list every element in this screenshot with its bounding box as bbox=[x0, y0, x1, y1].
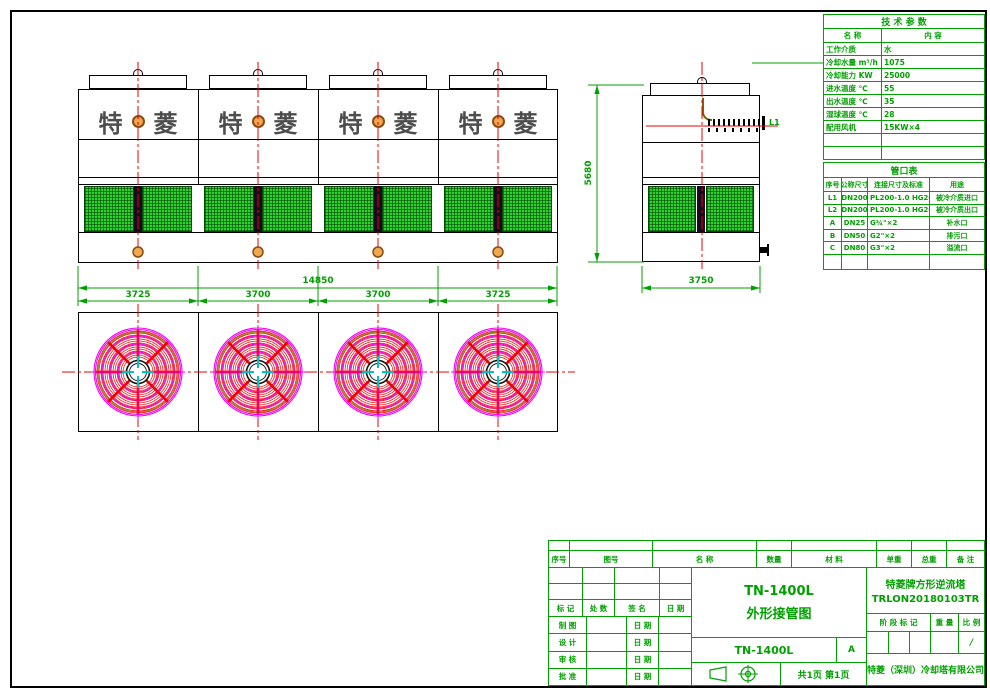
louver-panel bbox=[84, 186, 134, 232]
brand-logo-char: 菱 bbox=[394, 104, 418, 139]
port-cell: DN50 bbox=[841, 230, 867, 242]
louver-panel bbox=[382, 186, 432, 232]
sig-header: 日 期 bbox=[659, 600, 691, 616]
port-cell: L1 bbox=[824, 192, 841, 204]
sig-date-label: 日 期 bbox=[626, 634, 658, 650]
port-cell: G2"×2 bbox=[867, 230, 929, 242]
dim-segment: 3725 bbox=[108, 290, 168, 300]
cowl-cap bbox=[373, 69, 383, 75]
sig-row-label: 批 准 bbox=[549, 669, 586, 685]
tech-row-value: 28 bbox=[881, 108, 984, 120]
drawing-title-line2: 外形接管图 bbox=[746, 603, 811, 622]
louver-panel bbox=[262, 186, 312, 232]
cell-divider bbox=[198, 89, 199, 184]
dim-segment: 3700 bbox=[348, 290, 408, 300]
port-cell: C bbox=[824, 242, 841, 254]
stage-header: 重 量 bbox=[930, 614, 958, 631]
logo-nozzle-icon bbox=[492, 115, 505, 128]
tech-row-label: 冷却能力 KW bbox=[824, 69, 881, 81]
bom-empty-row bbox=[549, 541, 984, 550]
brand-logo: 特菱 bbox=[200, 103, 316, 139]
dim-segment: 3725 bbox=[468, 290, 528, 300]
dim-side-width: 3750 bbox=[671, 276, 731, 286]
bom-header: 单重 bbox=[876, 551, 911, 567]
port-cell: 被冷介质进口 bbox=[929, 192, 984, 204]
fan-cowl bbox=[329, 75, 427, 89]
spray-pipe bbox=[708, 119, 762, 126]
port-cell: 排污口 bbox=[929, 230, 984, 242]
port-cell: A bbox=[824, 217, 841, 229]
port-header: 公称尺寸 bbox=[841, 178, 867, 191]
port-cell bbox=[867, 255, 929, 269]
panel-line bbox=[642, 232, 760, 233]
sig-header: 标 记 bbox=[549, 600, 582, 616]
panel-line bbox=[642, 177, 760, 178]
projection-symbol-cell bbox=[692, 663, 780, 685]
louver-divider bbox=[134, 186, 142, 232]
port-cell: DN25 bbox=[841, 217, 867, 229]
louver-panel bbox=[142, 186, 192, 232]
sig-header: 处 数 bbox=[582, 600, 614, 616]
cell-divider bbox=[198, 312, 199, 432]
dim-total-width: 14850 bbox=[288, 276, 348, 286]
sig-row-label: 审 核 bbox=[549, 652, 586, 668]
signature-block: 标 记 处 数 签 名 日 期 制 图 日 期 设 计 日 期 bbox=[549, 568, 691, 685]
tech-row-value: 15KW×4 bbox=[881, 121, 984, 133]
port-cell: DN80 bbox=[841, 242, 867, 254]
company-name: 特菱（深圳）冷却塔有限公司 bbox=[867, 654, 984, 685]
dim-segment: 3700 bbox=[228, 290, 288, 300]
product-name: 特菱牌方形逆流塔 bbox=[885, 576, 965, 591]
drain-nozzle bbox=[760, 247, 767, 253]
port-cell: G3"×2 bbox=[867, 242, 929, 254]
panel-line bbox=[642, 142, 760, 143]
pipe-label: L1 bbox=[769, 118, 787, 127]
cowl-cap bbox=[253, 69, 263, 75]
pipe-flange bbox=[762, 116, 765, 130]
tech-row-label: 配用风机 bbox=[824, 121, 881, 133]
louver-divider bbox=[254, 186, 262, 232]
drain-nozzle-flange bbox=[767, 244, 769, 256]
panel-line bbox=[78, 184, 558, 185]
brand-logo: 特菱 bbox=[320, 103, 436, 139]
tech-row-label: 湿球温度 ℃ bbox=[824, 108, 881, 120]
port-header: 用途 bbox=[929, 178, 984, 191]
port-cell: G¾"×2 bbox=[867, 217, 929, 229]
tech-table-title: 技 术 参 数 bbox=[824, 15, 984, 28]
bom-header: 总重 bbox=[911, 551, 946, 567]
port-cell: L2 bbox=[824, 205, 841, 217]
port-header: 序号 bbox=[824, 178, 841, 191]
bom-header: 材 料 bbox=[791, 551, 876, 567]
sig-date-label: 日 期 bbox=[626, 652, 658, 668]
fan-cowl bbox=[209, 75, 307, 89]
bom-header: 备 注 bbox=[946, 551, 984, 567]
fan-cowl bbox=[89, 75, 187, 89]
tech-row-label: 冷却水量 m³/h bbox=[824, 56, 881, 68]
tech-row-label bbox=[824, 147, 881, 159]
bom-header: 数量 bbox=[756, 551, 791, 567]
logo-nozzle-icon bbox=[132, 115, 145, 128]
port-cell: 溢流口 bbox=[929, 242, 984, 254]
panel-line bbox=[78, 232, 558, 233]
logo-nozzle-icon bbox=[252, 115, 265, 128]
product-block: 特菱牌方形逆流塔 TRLON20180103TR 阶 段 标 记 重 量 比 例… bbox=[866, 568, 984, 685]
tech-col-name: 名 称 bbox=[824, 29, 881, 42]
tech-col-content: 内 容 bbox=[881, 29, 984, 42]
drawing-title-line1: TN-1400L bbox=[744, 584, 814, 599]
louver-panel bbox=[706, 186, 754, 232]
louver-panel bbox=[648, 186, 696, 232]
brand-logo-char: 特 bbox=[99, 104, 123, 139]
cell-divider bbox=[318, 312, 319, 432]
sig-row-label: 制 图 bbox=[549, 617, 586, 633]
port-cell bbox=[824, 255, 841, 269]
cowl-cap bbox=[697, 77, 707, 83]
tech-row-label: 出水温度 ℃ bbox=[824, 95, 881, 107]
cowl-cap bbox=[133, 69, 143, 75]
brand-logo: 特菱 bbox=[440, 103, 556, 139]
louver-divider bbox=[697, 186, 705, 232]
louver-panel bbox=[324, 186, 374, 232]
tech-row-value bbox=[881, 134, 984, 146]
louver-divider bbox=[374, 186, 382, 232]
cell-divider bbox=[318, 89, 319, 184]
spray-pipe-nozzles bbox=[708, 128, 762, 132]
drawing-number: TRLON20180103TR bbox=[872, 594, 980, 605]
port-cell bbox=[841, 255, 867, 269]
sig-date-label: 日 期 bbox=[626, 617, 658, 633]
port-table-title: 管口表 bbox=[824, 163, 984, 177]
tech-row-label: 工作介质 bbox=[824, 43, 881, 55]
logo-nozzle-icon bbox=[372, 115, 385, 128]
tech-row-value bbox=[881, 147, 984, 159]
brand-logo-char: 特 bbox=[339, 104, 363, 139]
bom-header: 序号 bbox=[549, 551, 569, 567]
stage-header: 阶 段 标 记 bbox=[867, 614, 930, 631]
pipe-port-table: 管口表 序号公称尺寸连接尺寸及标准用途 L1DN200PL200-1.0 HG2… bbox=[823, 162, 985, 270]
bom-header: 图号 bbox=[569, 551, 652, 567]
cell-divider bbox=[438, 89, 439, 184]
tech-row-value: 水 bbox=[881, 43, 984, 55]
brand-logo: 特菱 bbox=[80, 103, 196, 139]
port-cell: PL200-1.0 HG20593 bbox=[867, 205, 929, 217]
tech-row-label: 进水温度 ℃ bbox=[824, 82, 881, 94]
cad-drawing-canvas: 特菱 特菱 特菱 特菱 L1 bbox=[0, 0, 990, 693]
tech-row-value: 25000 bbox=[881, 69, 984, 81]
brand-logo-char: 菱 bbox=[274, 104, 298, 139]
sig-header: 签 名 bbox=[614, 600, 659, 616]
brand-logo-char: 菱 bbox=[154, 104, 178, 139]
port-header: 连接尺寸及标准 bbox=[867, 178, 929, 191]
tech-row-value: 35 bbox=[881, 95, 984, 107]
port-cell: 补水口 bbox=[929, 217, 984, 229]
page-count: 共1页 第1页 bbox=[780, 663, 866, 685]
port-cell: DN200 bbox=[841, 192, 867, 204]
port-cell: B bbox=[824, 230, 841, 242]
tech-params-table: 技 术 参 数 名 称内 容 工作介质水 冷却水量 m³/h1075 冷却能力 … bbox=[823, 14, 985, 160]
port-cell: PL200-1.0 HG20593 bbox=[867, 192, 929, 204]
stage-header: 比 例 bbox=[958, 614, 984, 631]
panel-line bbox=[642, 184, 760, 185]
fan-cowl bbox=[449, 75, 547, 89]
louver-panel bbox=[444, 186, 494, 232]
tech-row-value: 1075 bbox=[881, 56, 984, 68]
model-number: TN-1400L bbox=[692, 638, 836, 662]
inlet-pipe-bend bbox=[702, 98, 712, 121]
bom-header: 名 称 bbox=[652, 551, 756, 567]
louver-divider bbox=[494, 186, 502, 232]
brand-logo-char: 菱 bbox=[514, 104, 538, 139]
brand-logo-char: 特 bbox=[219, 104, 243, 139]
sig-date-label: 日 期 bbox=[626, 669, 658, 685]
cell-divider bbox=[438, 312, 439, 432]
tech-row-value: 55 bbox=[881, 82, 984, 94]
scale-value: / bbox=[958, 632, 984, 653]
port-cell bbox=[929, 255, 984, 269]
port-cell: DN200 bbox=[841, 205, 867, 217]
revision-letter: A bbox=[836, 638, 866, 662]
port-cell: 被冷介质出口 bbox=[929, 205, 984, 217]
sig-row-label: 设 计 bbox=[549, 634, 586, 650]
louver-panel bbox=[204, 186, 254, 232]
dim-height: 5680 bbox=[584, 151, 594, 195]
cowl-cap bbox=[493, 69, 503, 75]
first-angle-projection-icon bbox=[706, 665, 766, 683]
louver-panel bbox=[502, 186, 552, 232]
brand-logo-char: 特 bbox=[459, 104, 483, 139]
bom-header-row: 序号 图号 名 称 数量 材 料 单重 总重 备 注 bbox=[549, 550, 984, 567]
title-block: 序号 图号 名 称 数量 材 料 单重 总重 备 注 标 记 处 数 签 名 日… bbox=[548, 540, 985, 686]
drawing-title-block: TN-1400L 外形接管图 TN-1400L A bbox=[691, 568, 866, 685]
tech-row-label bbox=[824, 134, 881, 146]
